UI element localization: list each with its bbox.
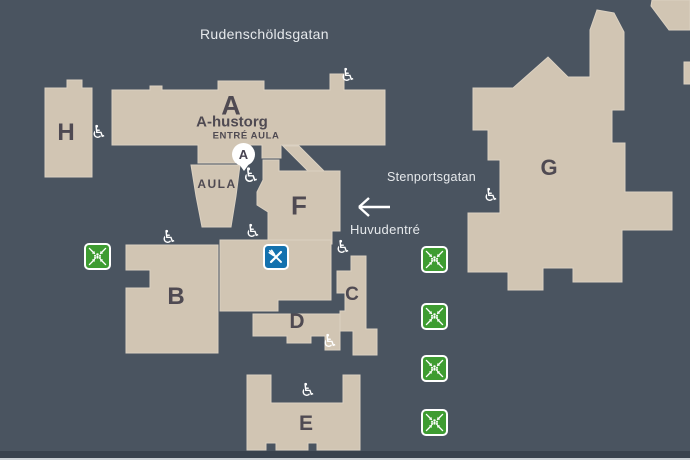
wheelchair-icon: ♿	[245, 222, 261, 240]
aula-shape	[191, 165, 240, 227]
building-label-g: G	[540, 155, 557, 181]
assembly-point-icon	[421, 246, 448, 273]
aula-label: AULA	[197, 177, 236, 191]
building-label-c: C	[345, 284, 359, 306]
campus-map: Rudenschöldsgatan Stenportsgatan Huvuden…	[0, 0, 690, 460]
a-hustorg-label: A-hustorg	[196, 114, 268, 131]
building-label-d: D	[289, 310, 304, 334]
street-label-rudenscholdsgatan: Rudenschöldsgatan	[200, 26, 329, 42]
corner-building-shape	[651, 0, 690, 30]
restaurant-icon	[263, 244, 289, 270]
wheelchair-icon: ♿	[300, 381, 316, 399]
wheelchair-icon: ♿	[335, 238, 351, 256]
building-label-e: E	[299, 412, 313, 436]
wheelchair-icon: ♿	[322, 332, 338, 350]
building-g-shape	[468, 10, 672, 290]
assembly-point-icon	[421, 355, 448, 382]
wheelchair-icon: ♿	[161, 228, 177, 246]
assembly-point-icon	[84, 243, 111, 270]
building-label-b: B	[167, 283, 184, 311]
assembly-point-icon	[421, 409, 448, 436]
entre-aula-label: ENTRÉ AULA	[213, 131, 280, 142]
wheelchair-icon: ♿	[91, 123, 107, 141]
wheelchair-icon: ♿	[483, 186, 499, 204]
left-arrow-icon	[353, 193, 393, 221]
assembly-point-icon	[421, 303, 448, 330]
street-label-stenportsgatan: Stenportsgatan	[387, 170, 476, 184]
entrance-path-shape	[283, 146, 325, 172]
building-label-f: F	[291, 191, 307, 222]
footer-bar	[0, 451, 690, 458]
building-label-h: H	[57, 119, 74, 147]
wheelchair-icon: ♿	[242, 166, 260, 186]
main-entrance-label: Huvudentré	[350, 222, 420, 237]
aula-entrance-marker: A	[232, 143, 255, 166]
wheelchair-icon: ♿	[340, 66, 356, 84]
edge-building-sliver	[684, 62, 690, 84]
